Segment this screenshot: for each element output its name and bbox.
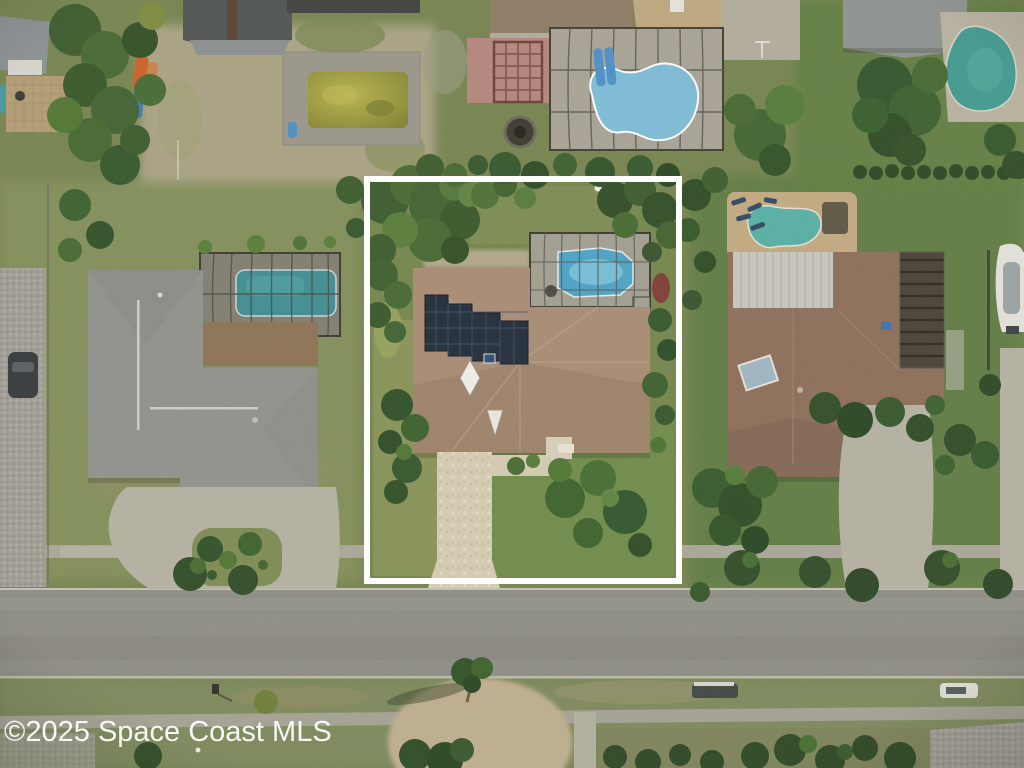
vignette [0, 0, 1024, 768]
watermark: ©2025 Space Coast MLS [4, 716, 332, 749]
aerial-photo-canvas [0, 0, 1024, 768]
aerial-photo: ©2025 Space Coast MLS [0, 0, 1024, 768]
